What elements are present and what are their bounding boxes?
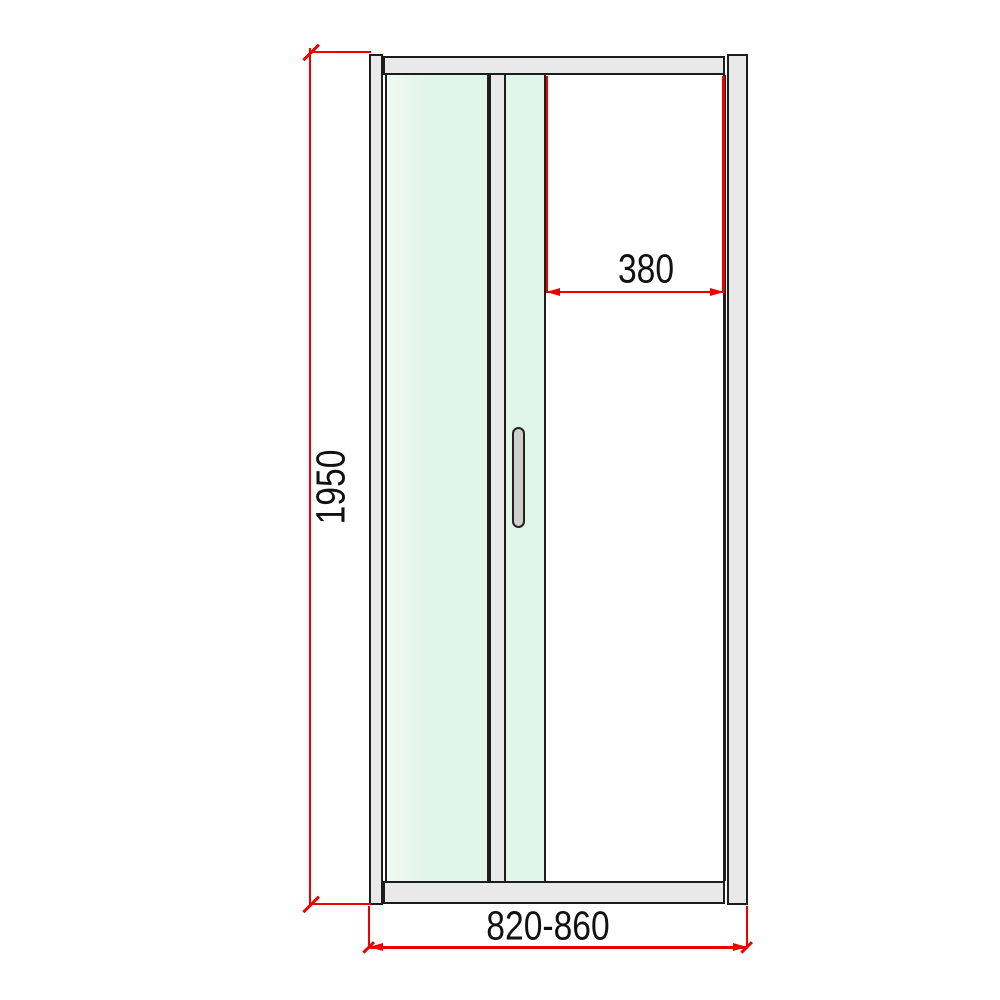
dim-opening-ext-left (546, 76, 549, 293)
wall-profile-left (369, 54, 383, 905)
dim-opening-label: 380 (618, 249, 674, 290)
wall-profile-right (727, 54, 748, 905)
fixed-glass-panel (385, 75, 489, 881)
dim-opening-arrow-right (710, 288, 724, 296)
top-rail (383, 56, 725, 75)
door-opening (549, 75, 724, 881)
dim-width-ext-left (368, 906, 371, 948)
bottom-rail (383, 881, 725, 904)
dim-opening-ext-right (722, 76, 725, 293)
dim-height-ext-top (309, 51, 371, 54)
dim-opening-arrow-left (546, 288, 560, 296)
center-stile (489, 75, 506, 881)
dim-height-label: 1950 (311, 450, 352, 525)
door-handle (512, 427, 525, 528)
dim-width-ext-right (746, 906, 749, 948)
shower-door-technical-drawing: 1950 380 820-860 (0, 0, 1000, 1000)
dim-width-label: 820-860 (486, 906, 609, 947)
dim-height-ext-bottom (309, 903, 371, 906)
